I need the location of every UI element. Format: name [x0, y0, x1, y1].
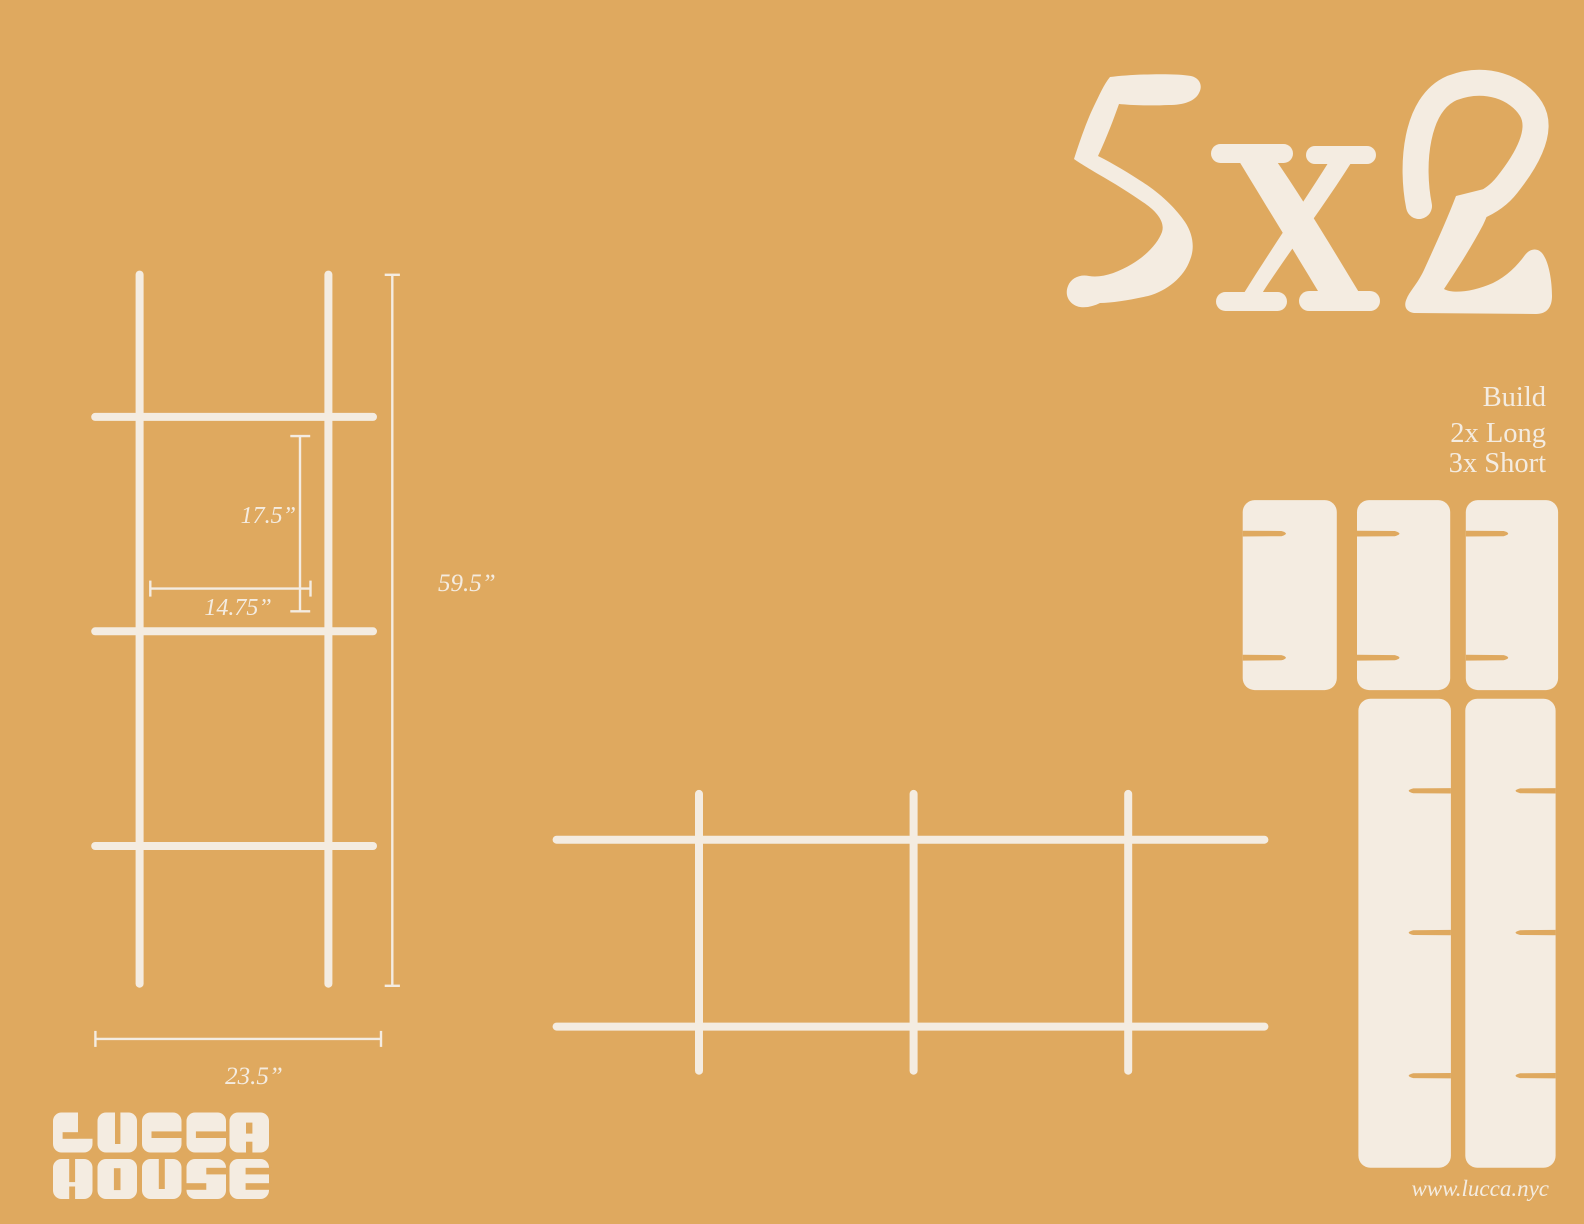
svg-text:23.5”: 23.5” [225, 1063, 283, 1090]
svg-text:14.75”: 14.75” [204, 595, 271, 621]
svg-text:2x Long: 2x Long [1450, 418, 1546, 449]
svg-text:17.5”: 17.5” [241, 503, 296, 529]
svg-text:Build: Build [1483, 382, 1546, 413]
svg-text:59.5”: 59.5” [438, 570, 496, 597]
svg-text:3x Short: 3x Short [1449, 448, 1546, 479]
svg-text:www.lucca.nyc: www.lucca.nyc [1411, 1176, 1549, 1201]
